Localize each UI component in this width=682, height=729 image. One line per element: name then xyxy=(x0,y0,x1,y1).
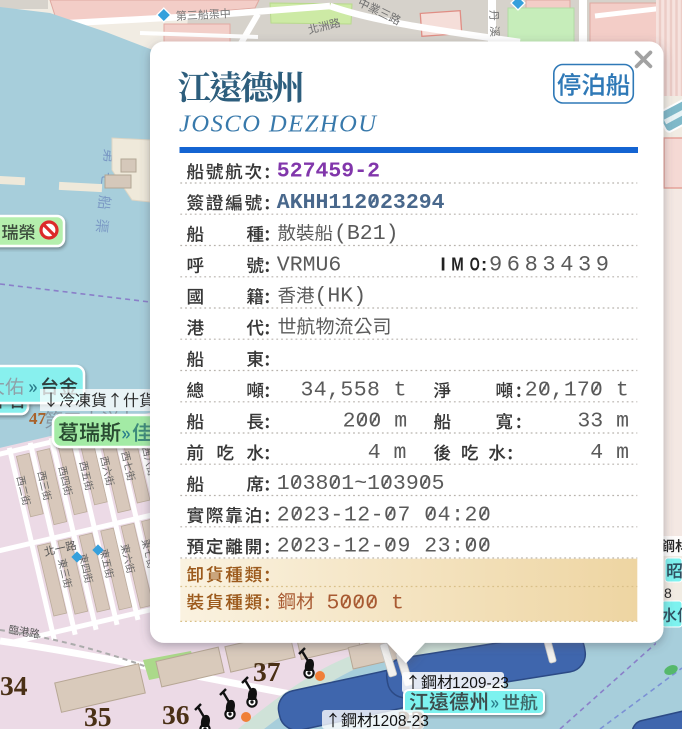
svg-text:37: 37 xyxy=(253,656,281,687)
svg-text:103801~103905: 103801~103905 xyxy=(277,472,445,496)
svg-text:36: 36 xyxy=(162,699,190,729)
svg-text:35: 35 xyxy=(84,701,112,729)
svg-text:O: O xyxy=(470,253,480,274)
svg-text:VRMU6: VRMU6 xyxy=(277,253,342,277)
svg-text:4 m: 4 m xyxy=(368,441,407,465)
svg-text:I: I xyxy=(441,253,446,274)
svg-text:1208-23: 1208-23 xyxy=(372,713,429,729)
svg-text:20,170 t: 20,170 t xyxy=(525,378,629,402)
svg-text:5000 t: 5000 t xyxy=(327,592,404,616)
svg-text:33 m: 33 m xyxy=(577,410,629,434)
svg-text:M: M xyxy=(451,253,464,274)
svg-text:AKHH112023294: AKHH112023294 xyxy=(277,191,445,215)
svg-text:8: 8 xyxy=(664,585,672,601)
svg-text:(HK): (HK) xyxy=(315,285,367,309)
svg-text:34,558 t: 34,558 t xyxy=(301,378,407,402)
svg-text:200 m: 200 m xyxy=(343,410,408,434)
svg-text:9683439: 9683439 xyxy=(489,252,609,277)
svg-text:2023-12-07 04:20: 2023-12-07 04:20 xyxy=(277,503,491,527)
svg-text:2023-12-09 23:00: 2023-12-09 23:00 xyxy=(277,535,491,559)
svg-text:34: 34 xyxy=(0,670,28,701)
svg-text::: : xyxy=(481,253,487,274)
svg-text:527459-2: 527459-2 xyxy=(277,160,380,184)
svg-text:(B21): (B21) xyxy=(334,222,399,246)
svg-text:47: 47 xyxy=(29,409,47,428)
svg-text:4 m: 4 m xyxy=(590,441,629,465)
svg-text:JOSCO DEZHOU: JOSCO DEZHOU xyxy=(179,111,378,138)
